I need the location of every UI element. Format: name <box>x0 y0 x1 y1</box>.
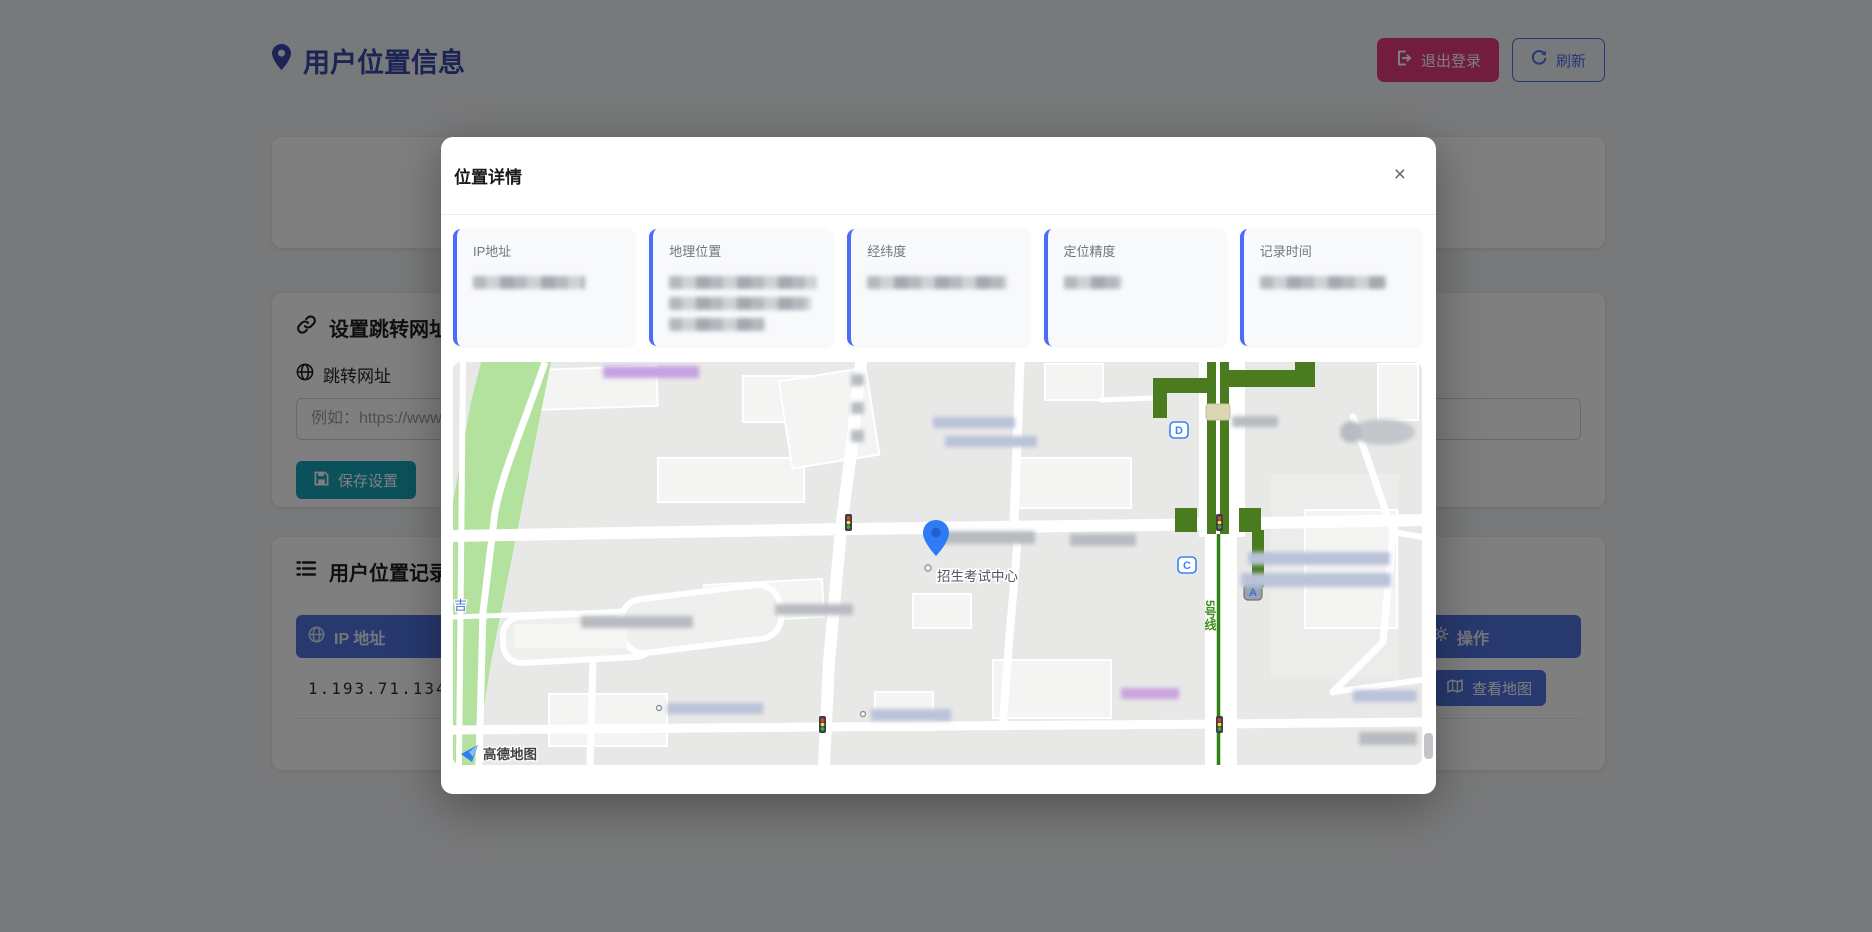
redacted-value <box>669 318 765 331</box>
redacted-value <box>473 276 585 289</box>
accuracy-card-label: 定位精度 <box>1064 241 1210 260</box>
exit-a-label: A <box>1249 587 1257 599</box>
modal-scrollbar-thumb[interactable] <box>1424 733 1433 759</box>
ip-card: IP地址 <box>453 229 635 346</box>
close-icon[interactable]: × <box>1388 163 1412 186</box>
exit-c-label: C <box>1183 560 1191 572</box>
latlng-card: 经纬度 <box>847 229 1029 346</box>
geo-card-label: 地理位置 <box>669 241 817 260</box>
modal-header: 位置详情 <box>441 137 1436 215</box>
metro-line-label: 5号线 <box>1203 600 1217 631</box>
accuracy-card: 定位精度 <box>1044 229 1226 346</box>
map-station-marker <box>1206 404 1230 420</box>
redacted-value <box>669 297 811 310</box>
geo-card: 地理位置 <box>649 229 833 346</box>
time-card: 记录时间 <box>1240 229 1422 346</box>
latlng-card-label: 经纬度 <box>867 241 1013 260</box>
location-detail-modal: 位置详情 × IP地址 地理位置 经纬度 定位精度 记录时间 <box>441 137 1436 794</box>
redacted-value <box>669 276 817 289</box>
amap-logo-text: 高德地图 <box>483 746 537 762</box>
redacted-value <box>1260 276 1386 289</box>
poi-label: 招生考试中心 <box>937 569 1018 584</box>
detail-cards-row: IP地址 地理位置 经纬度 定位精度 记录时间 <box>453 229 1422 346</box>
ip-card-label: IP地址 <box>473 241 619 260</box>
exit-d-label: D <box>1175 425 1183 437</box>
time-card-label: 记录时间 <box>1260 241 1406 260</box>
modal-title: 位置详情 <box>454 163 522 188</box>
map-canvas[interactable]: 5号线 D C A <box>453 362 1422 765</box>
amap-map: 5号线 D C A <box>453 362 1422 765</box>
road-name-char: 吉 <box>454 598 467 613</box>
redacted-value <box>1064 276 1122 289</box>
redacted-value <box>867 276 1007 289</box>
